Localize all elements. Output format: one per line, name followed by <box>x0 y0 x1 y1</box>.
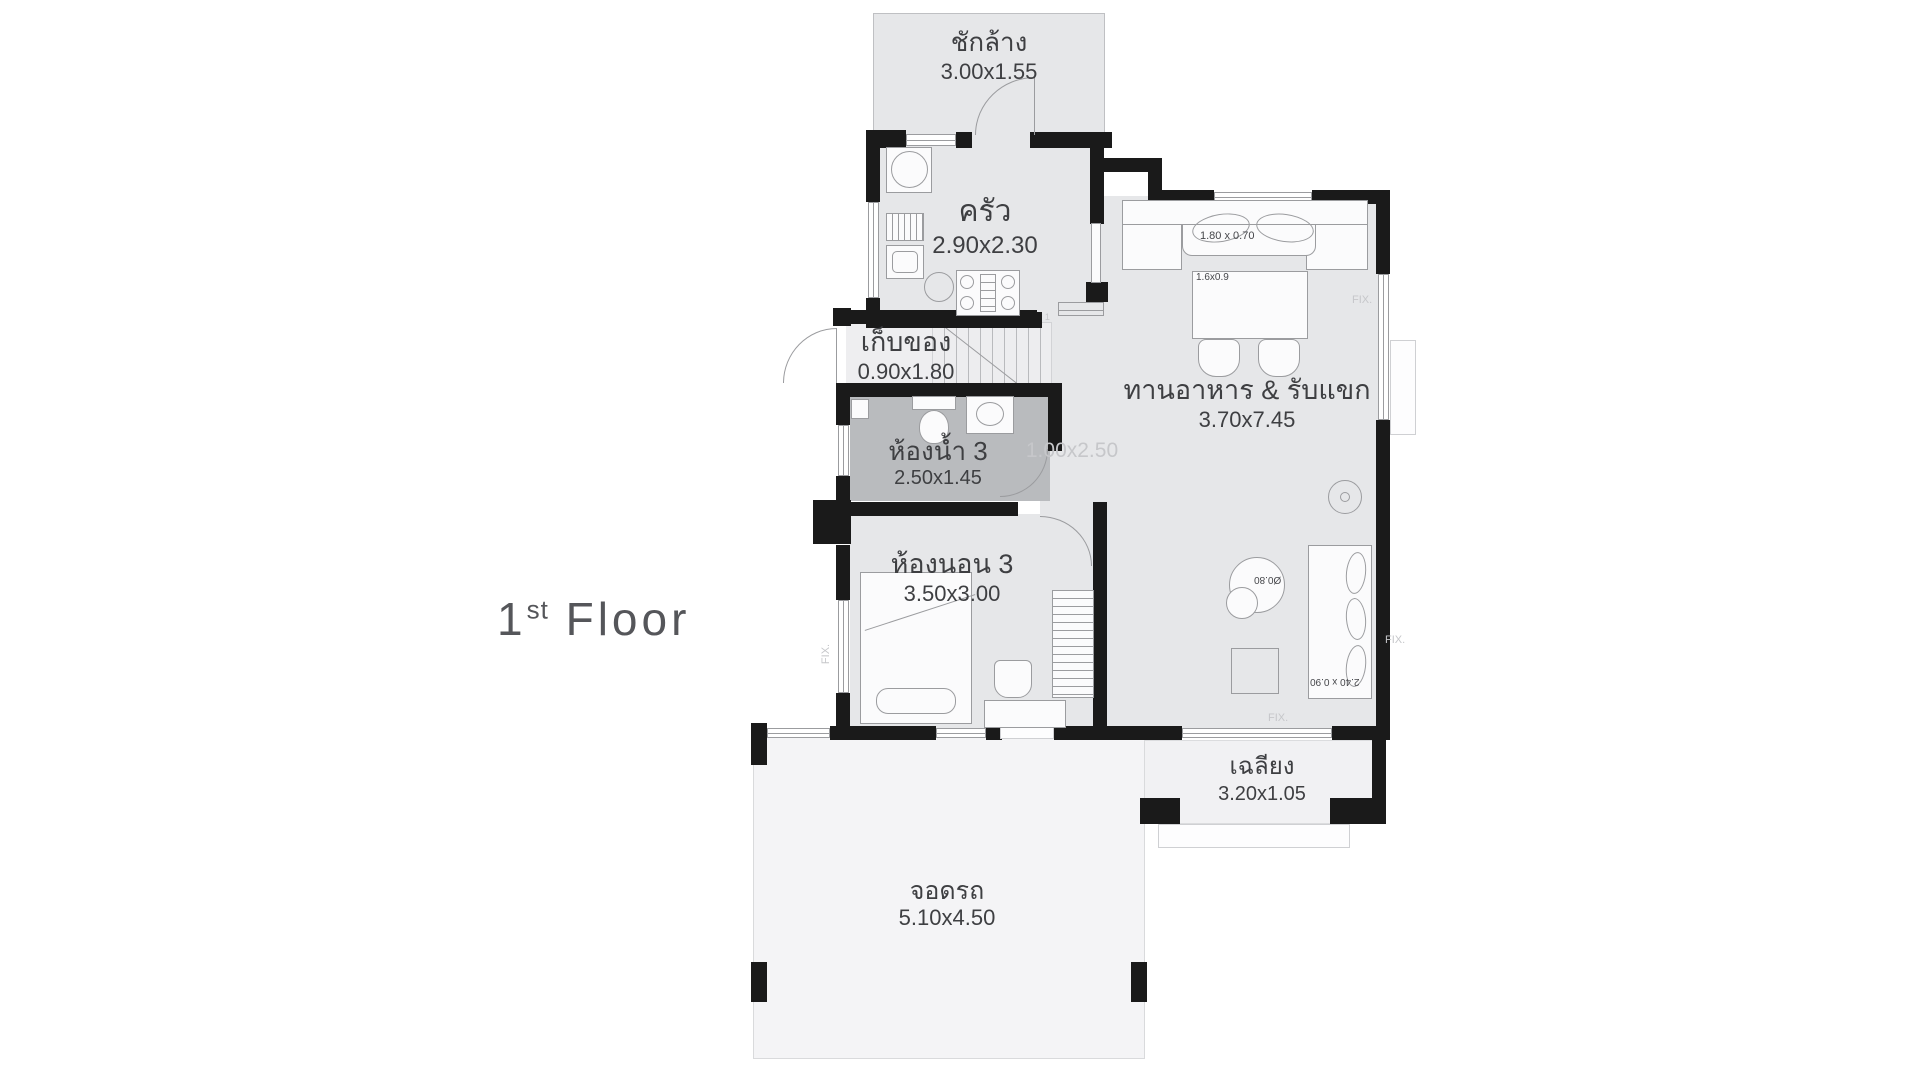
fix-side-label: FIX. <box>1385 634 1405 646</box>
floor-rug <box>1231 648 1279 694</box>
stair-railing <box>1058 302 1104 316</box>
wall-segment <box>1140 798 1180 824</box>
storage-dims: 0.90x1.80 <box>858 360 955 383</box>
water-heater <box>851 399 869 419</box>
storage-label: เก็บของ <box>861 328 952 356</box>
floor-ordinal-suffix: st <box>527 595 549 625</box>
bathroom3-dims: 2.50x1.45 <box>894 468 982 489</box>
living-label: ทานอาหาร & รับแขก <box>1123 376 1370 404</box>
wall-segment <box>1054 726 1107 740</box>
washing-machine-drum <box>891 151 928 188</box>
living-dims: 3.70x7.45 <box>1199 408 1296 431</box>
wall-segment <box>1090 132 1104 224</box>
burner <box>1001 296 1015 310</box>
carport-label: จอดรถ <box>910 878 984 904</box>
window <box>838 425 849 476</box>
door-leaf <box>1091 223 1101 283</box>
fix-door-label: FIX. <box>1268 712 1288 724</box>
window <box>936 728 986 738</box>
wardrobe <box>1052 590 1094 698</box>
burner <box>960 275 974 289</box>
window <box>838 600 849 693</box>
stove-center-grill <box>980 274 996 312</box>
desk <box>984 700 1066 728</box>
wall-segment <box>1093 502 1107 740</box>
round-table-dims-label: Ø0.80 <box>1254 574 1281 585</box>
entry-step <box>1000 727 1054 739</box>
kitchen-label: ครัว <box>958 196 1011 228</box>
wall-segment <box>956 132 972 148</box>
laundry-dims: 3.00x1.55 <box>941 60 1038 83</box>
wash-basin <box>976 402 1004 426</box>
burner <box>1001 275 1015 289</box>
dish-rack <box>886 213 924 241</box>
carport-column <box>751 962 767 1002</box>
fix-window-label: FIX. <box>1352 294 1372 306</box>
round-stool <box>1226 587 1258 619</box>
carport-column <box>751 723 767 765</box>
wall-segment <box>1376 190 1390 274</box>
porch-label: เฉลียง <box>1229 754 1294 779</box>
wall-segment <box>866 130 880 202</box>
desk-chair <box>994 660 1032 698</box>
sink-basin <box>892 251 918 273</box>
fan-hub <box>1340 492 1350 502</box>
floor-plan-canvas: 1st Floor 987654321 <box>0 0 1920 1080</box>
page-title: 1st Floor <box>497 592 690 646</box>
wall-segment <box>836 502 1018 516</box>
sliding-door <box>1182 728 1332 738</box>
carport-column <box>1131 962 1147 1002</box>
wall-segment <box>836 726 936 740</box>
door-swing <box>783 328 837 383</box>
porch-step <box>1158 824 1350 848</box>
wall-segment <box>1330 798 1386 824</box>
bathroom3-label: ห้องน้ำ 3 <box>888 438 988 465</box>
toilet-tank <box>912 396 956 410</box>
stair-number: 1 <box>1045 312 1050 324</box>
window <box>868 202 879 298</box>
burner <box>960 296 974 310</box>
sofa-bench-side <box>1122 224 1182 270</box>
dining-table-dims-label: 1.6x0.9 <box>1196 272 1229 283</box>
wall-segment <box>1332 726 1390 740</box>
bedroom3-dims: 3.50x3.00 <box>904 582 1001 605</box>
wall-segment <box>830 726 838 740</box>
laundry-label: ชักล้าง <box>951 29 1028 56</box>
dining-chair <box>1258 339 1300 377</box>
porch-dims: 3.20x1.05 <box>1218 784 1306 805</box>
kitchen-dims: 2.90x2.30 <box>932 233 1037 258</box>
window <box>1378 274 1389 420</box>
floor-number: 1 <box>497 593 527 645</box>
planter-box <box>1390 340 1416 435</box>
pillow <box>876 688 956 714</box>
column <box>1086 282 1108 302</box>
dining-chair <box>1198 339 1240 377</box>
floor-word: Floor <box>566 593 691 645</box>
wall-segment <box>836 383 850 425</box>
wall-segment <box>836 545 850 600</box>
wall-segment <box>1376 420 1390 740</box>
gas-cylinder <box>924 272 954 302</box>
wall-segment <box>836 383 1052 397</box>
bedroom3-label: ห้องนอน 3 <box>891 550 1014 578</box>
window <box>767 728 830 738</box>
sofa-dims-label: 2.40 x 0.90 <box>1310 676 1359 687</box>
window <box>906 134 956 146</box>
carport-dims: 5.10x4.50 <box>899 906 996 929</box>
stair-hall-dims: 1.00x2.50 <box>1026 440 1118 462</box>
bench-dims-label: 1.80 x 0.70 <box>1200 230 1254 242</box>
fix-bedroom-window-label: FIX. <box>820 644 832 664</box>
